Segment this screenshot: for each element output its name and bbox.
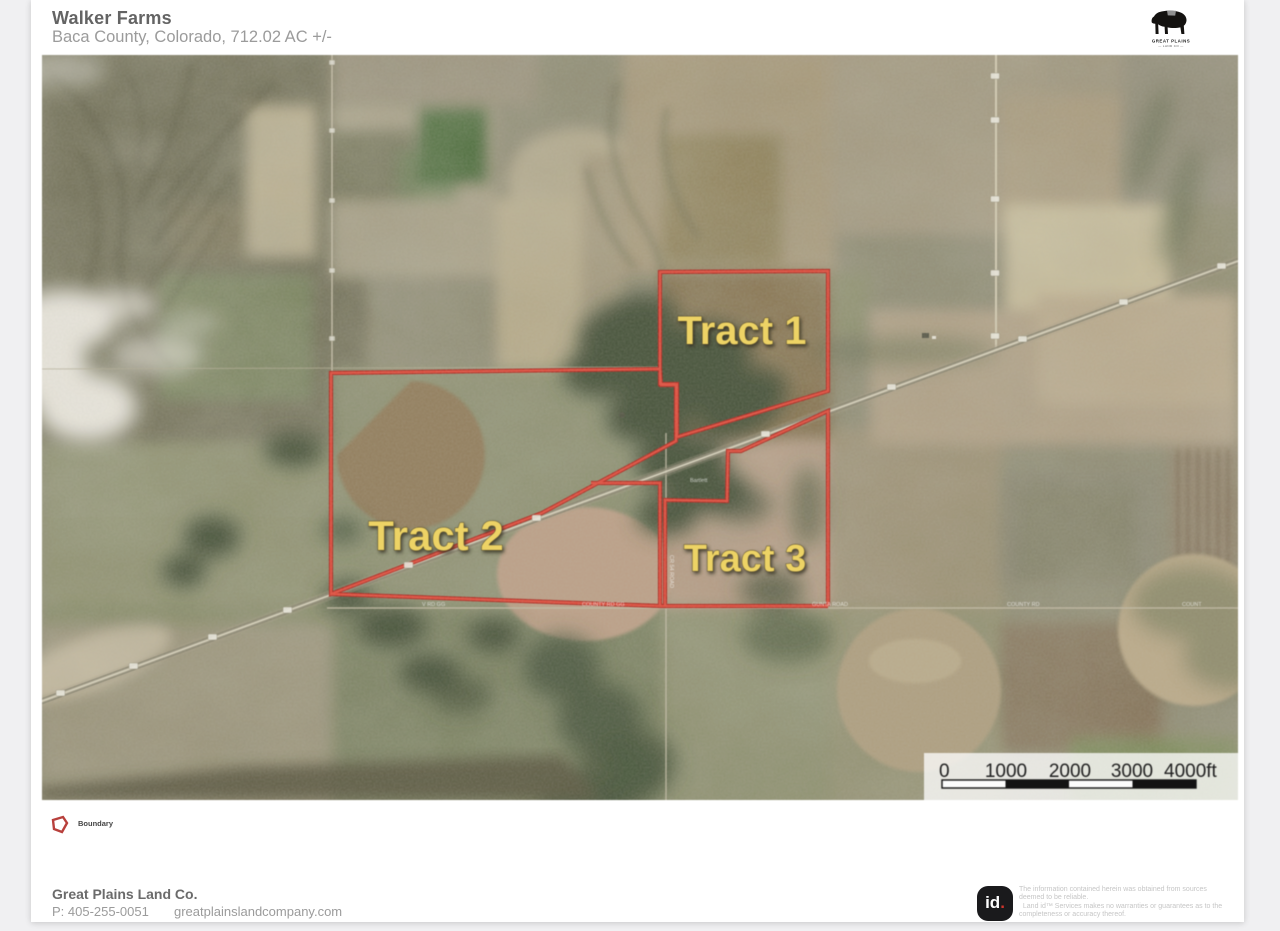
svg-text:3000: 3000	[1111, 761, 1153, 782]
svg-text:— LAND CO —: — LAND CO —	[1158, 44, 1183, 48]
svg-text:0: 0	[939, 761, 950, 782]
svg-text:GREAT PLAINS: GREAT PLAINS	[1152, 39, 1190, 44]
svg-text:1000: 1000	[985, 761, 1027, 782]
svg-text:Tract 1: Tract 1	[678, 309, 807, 353]
svg-text:4000ft: 4000ft	[1164, 761, 1218, 782]
svg-text:Tract 2: Tract 2	[368, 512, 503, 559]
svg-text:Tract 3: Tract 3	[684, 538, 807, 580]
svg-text:2000: 2000	[1049, 761, 1091, 782]
